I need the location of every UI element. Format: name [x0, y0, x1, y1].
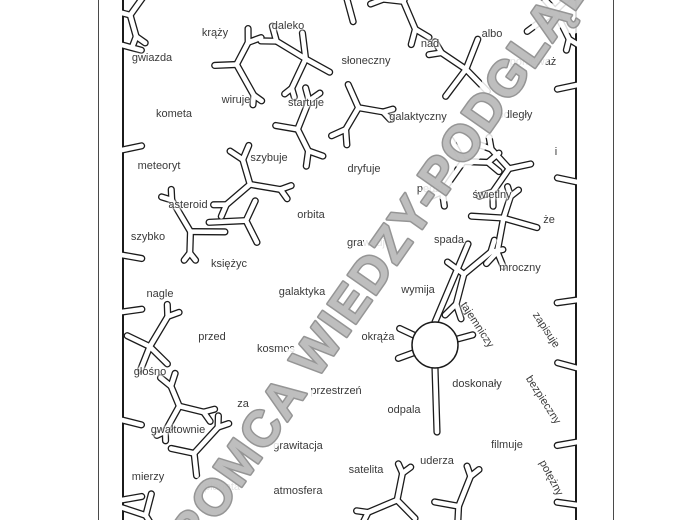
puzzle-word: wymija [401, 284, 435, 296]
puzzle-word: uderza [420, 455, 454, 467]
puzzle-word: bezpieczny [523, 374, 563, 427]
puzzle-word: gwiazda [132, 52, 172, 64]
puzzle-word: mroczny [499, 262, 541, 274]
puzzle-word: odległy [498, 109, 533, 121]
puzzle-word: daleko [272, 20, 304, 32]
puzzle-word: wiruje [222, 94, 251, 106]
puzzle-word: krąży [202, 27, 228, 39]
puzzle-word: głośno [134, 366, 166, 378]
puzzle-word: księżyc [211, 258, 247, 270]
puzzle-words-layer: krążydalekonadalbogwiazdasłonecznyponiew… [0, 0, 700, 520]
puzzle-word: zapisuje [530, 310, 562, 350]
puzzle-word: spada [434, 234, 464, 246]
puzzle-word: kosmos [257, 343, 295, 355]
puzzle-word: słoneczny [342, 55, 391, 67]
puzzle-word: doskonały [452, 378, 502, 390]
puzzle-word: szybuje [250, 152, 287, 164]
puzzle-word: galaktyka [279, 286, 325, 298]
puzzle-word: odpala [387, 404, 420, 416]
puzzle-word: okrąża [361, 331, 394, 343]
puzzle-word: galaktyczny [389, 111, 446, 123]
puzzle-word: gwałtownie [151, 424, 205, 436]
puzzle-word: szybko [131, 231, 165, 243]
puzzle-word: kometa [156, 108, 192, 120]
puzzle-word: że [543, 214, 555, 226]
puzzle-word: satelita [349, 464, 384, 476]
puzzle-word: orbita [297, 209, 325, 221]
puzzle-word: asteroid [168, 199, 207, 211]
puzzle-word: mierzy [132, 471, 164, 483]
puzzle-word: potężny [537, 458, 566, 498]
puzzle-word: nagle [147, 288, 174, 300]
puzzle-word: startuje [288, 97, 324, 109]
puzzle-word: grawituje [347, 237, 391, 249]
app-background: { "watermark": { "text": "ROMCA WIEDZY-P… [0, 0, 700, 520]
puzzle-word: tajemniczy [458, 300, 496, 350]
puzzle-word: dryfuje [347, 163, 380, 175]
puzzle-word: planeta [204, 481, 240, 493]
puzzle-word: atmosfera [274, 485, 323, 497]
puzzle-word: nad [421, 38, 439, 50]
puzzle-word: świetlny [472, 189, 511, 201]
puzzle-word: filmuje [491, 439, 523, 451]
puzzle-word: albo [482, 28, 503, 40]
puzzle-word: ponieważ [510, 56, 556, 68]
puzzle-word: przed [198, 331, 226, 343]
puzzle-word: pędzi [417, 183, 443, 195]
puzzle-word: za [237, 398, 249, 410]
puzzle-word: grawitacja [273, 440, 323, 452]
puzzle-word: meteoryt [138, 160, 181, 172]
puzzle-word: i [555, 146, 557, 158]
puzzle-word: przestrzeń [310, 385, 361, 397]
